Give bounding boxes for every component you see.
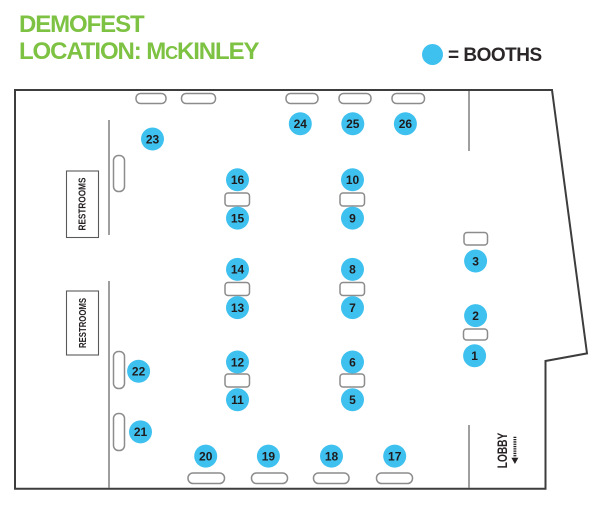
svg-text:9: 9 [349,211,356,225]
svg-text:12: 12 [231,355,245,369]
svg-text:11: 11 [231,393,244,407]
svg-text:18: 18 [325,449,339,463]
svg-text:RESTROOMS: RESTROOMS [78,177,89,230]
svg-text:7: 7 [349,301,356,315]
svg-text:10: 10 [346,173,360,187]
svg-text:2: 2 [472,309,479,323]
svg-text:3: 3 [472,254,479,268]
svg-text:23: 23 [146,132,160,146]
svg-text:25: 25 [346,117,360,131]
svg-text:1: 1 [471,349,478,363]
svg-text:17: 17 [388,449,402,463]
svg-text:RESTROOMS: RESTROOMS [78,298,89,348]
svg-text:19: 19 [262,449,276,463]
svg-text:21: 21 [134,425,148,439]
svg-text:13: 13 [231,301,245,315]
svg-text:22: 22 [132,365,146,379]
svg-text:24: 24 [294,117,308,131]
svg-text:5: 5 [349,393,356,407]
svg-text:14: 14 [231,263,245,277]
svg-text:6: 6 [349,355,356,369]
svg-text:LOBBY: LOBBY [494,432,510,468]
svg-text:26: 26 [399,117,413,131]
svg-text:15: 15 [231,211,245,225]
svg-text:20: 20 [199,449,213,463]
svg-text:16: 16 [231,173,245,187]
svg-text:8: 8 [349,263,356,277]
